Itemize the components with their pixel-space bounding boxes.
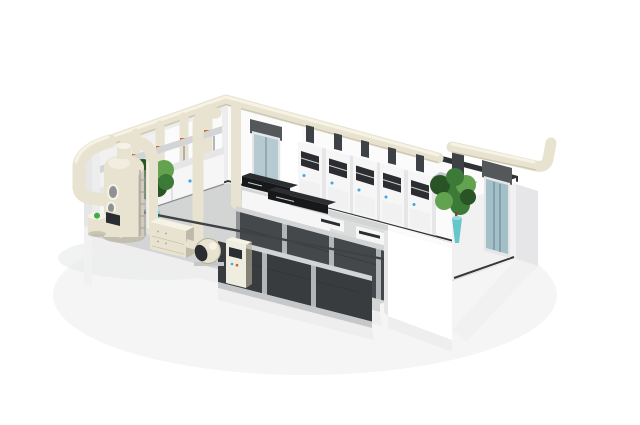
manhole-port — [108, 185, 118, 199]
hood-duct-stub — [361, 140, 369, 158]
hood-duct-stub — [306, 125, 314, 144]
hood-duct-stub — [416, 154, 424, 173]
chemical-drum — [88, 213, 106, 238]
cabinet — [360, 277, 372, 322]
control-cabinet — [226, 237, 252, 288]
glass-double-door — [482, 160, 512, 258]
dosing-tank — [104, 210, 122, 238]
hood-duct-stub — [388, 147, 396, 165]
drum-lid — [94, 213, 100, 219]
lab-scene-canvas — [0, 0, 640, 425]
lab-3d-render — [0, 0, 640, 425]
hood-duct-stub — [334, 133, 342, 151]
